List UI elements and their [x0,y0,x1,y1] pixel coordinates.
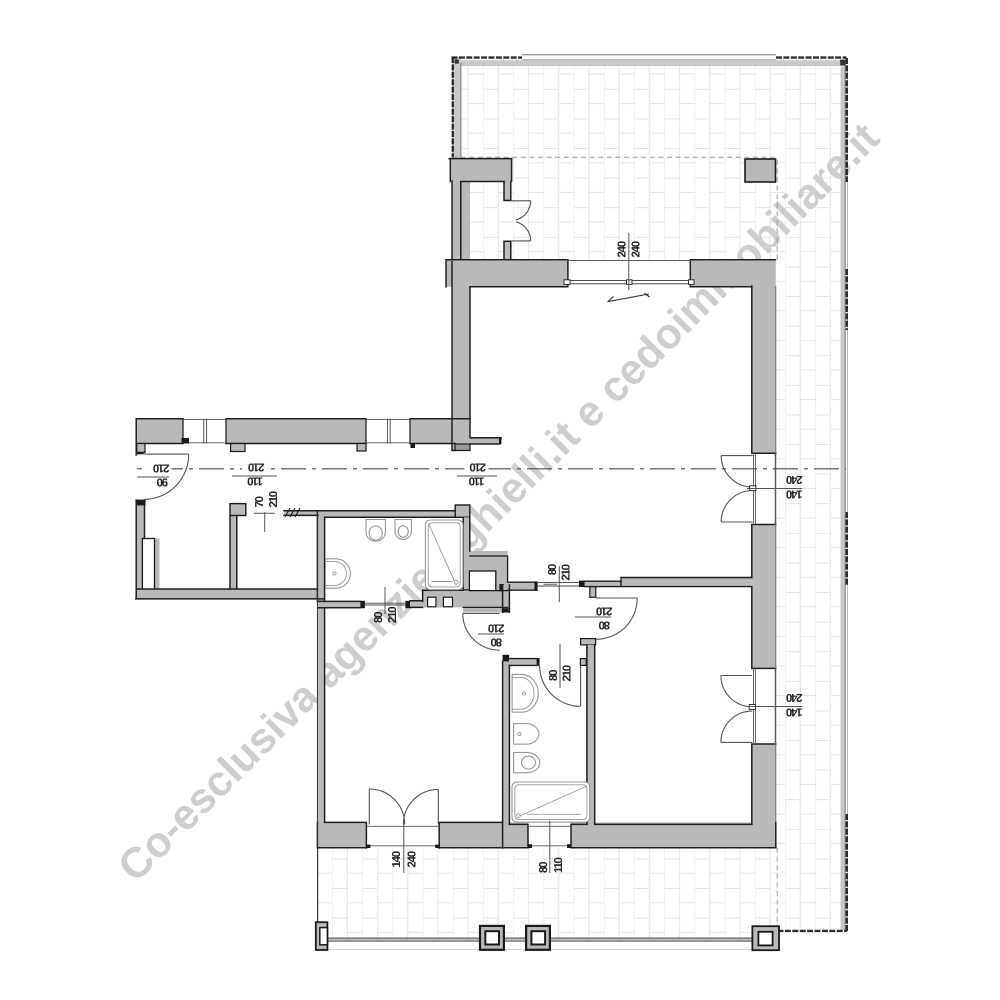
svg-text:80: 80 [547,564,559,575]
svg-text:210: 210 [268,491,280,507]
svg-text:210: 210 [562,665,574,681]
svg-text:210: 210 [387,607,399,623]
svg-text:140: 140 [786,487,802,499]
svg-text:110: 110 [469,475,485,487]
svg-text:70: 70 [254,496,266,507]
svg-text:210: 210 [248,461,264,473]
svg-text:210: 210 [488,622,504,634]
svg-text:80: 80 [373,612,385,623]
svg-text:110: 110 [553,857,565,873]
svg-text:210: 210 [596,605,612,617]
svg-text:90: 90 [157,476,168,488]
svg-text:140: 140 [786,705,802,717]
svg-text:80: 80 [599,619,610,631]
svg-text:210: 210 [561,564,573,580]
svg-text:80: 80 [491,636,502,648]
svg-text:110: 110 [247,475,263,487]
svg-text:210: 210 [470,461,486,473]
svg-text:240: 240 [407,851,419,867]
svg-text:240: 240 [631,241,643,257]
svg-text:240: 240 [617,241,629,257]
svg-text:80: 80 [548,670,560,681]
svg-text:240: 240 [786,473,802,485]
svg-text:240: 240 [786,691,802,703]
svg-text:80: 80 [538,862,550,873]
svg-text:210: 210 [153,462,169,474]
svg-text:140: 140 [391,851,403,867]
